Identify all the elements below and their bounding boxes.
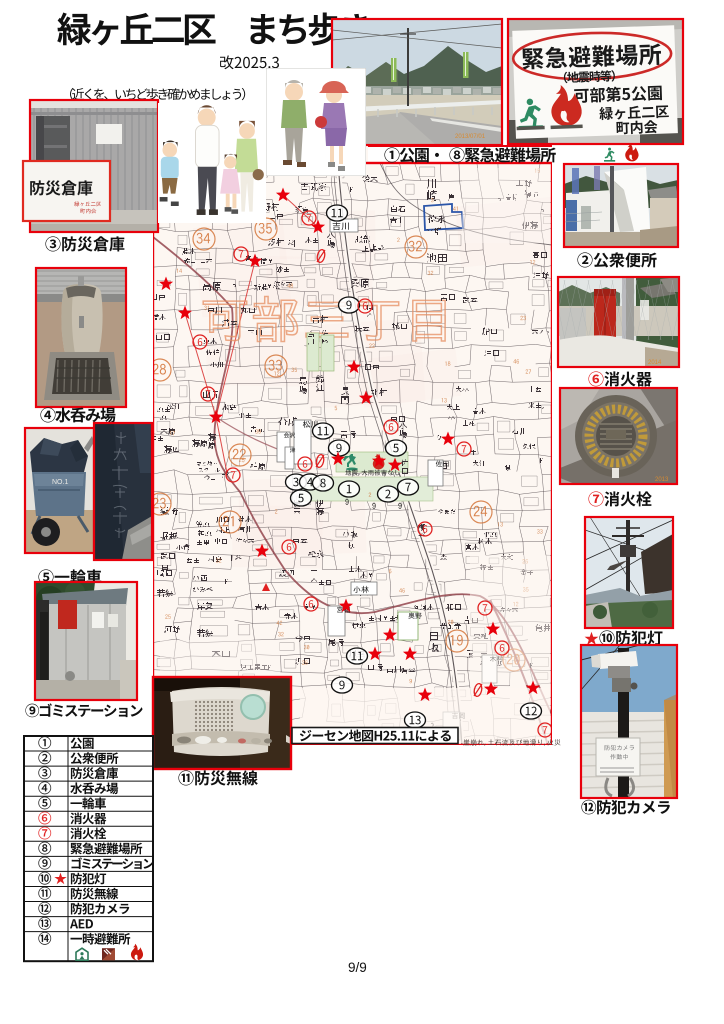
svg-text:NO.1: NO.1 bbox=[52, 479, 68, 486]
svg-text:2014: 2014 bbox=[648, 360, 662, 366]
svg-text:2013/07/01: 2013/07/01 bbox=[455, 134, 486, 140]
svg-text:2013: 2013 bbox=[655, 477, 669, 483]
svg-text:9/9: 9/9 bbox=[348, 960, 367, 975]
